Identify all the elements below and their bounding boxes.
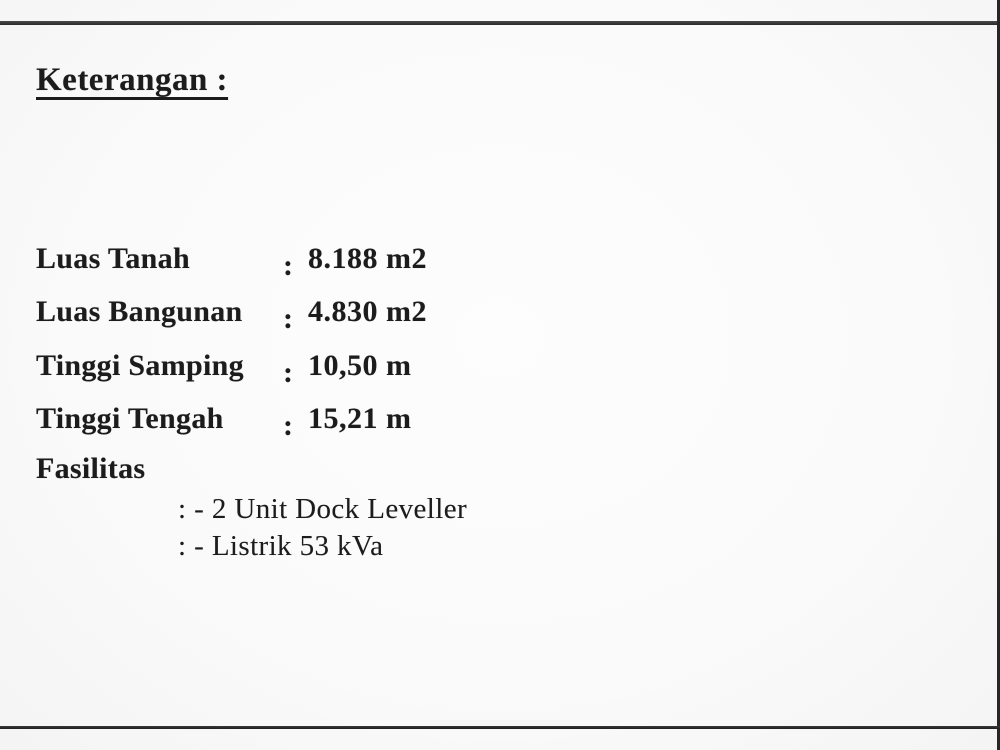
document-page: Keterangan : Luas Tanah : 8.188 m2 Luas … <box>0 0 1000 750</box>
specs-list: Luas Tanah : 8.188 m2 Luas Bangunan : 4.… <box>36 232 796 565</box>
spec-label: Fasilitas <box>36 452 283 486</box>
spec-row-luas-bangunan: Luas Bangunan : 4.830 m2 <box>36 286 796 340</box>
spec-label: Tinggi Tengah <box>36 402 283 436</box>
spec-value: 15,21 m <box>308 402 412 436</box>
spec-label: Luas Bangunan <box>36 295 283 329</box>
spec-colon: : <box>283 409 293 443</box>
facilities-items: : - 2 Unit Dock Leveller : - Listrik 53 … <box>36 491 796 565</box>
spec-row-tinggi-tengah: Tinggi Tengah : 15,21 m <box>36 393 796 447</box>
bottom-border-rule <box>0 726 1000 729</box>
spec-colon: : <box>283 249 293 283</box>
spec-label: Luas Tanah <box>36 242 283 276</box>
spec-row-fasilitas: Fasilitas <box>36 446 796 491</box>
spec-row-luas-tanah: Luas Tanah : 8.188 m2 <box>36 232 796 286</box>
page-title: Keterangan : <box>36 62 228 99</box>
spec-colon: : <box>283 302 293 336</box>
spec-value: 10,50 m <box>308 349 412 383</box>
facility-item-listrik: : - Listrik 53 kVa <box>178 528 796 565</box>
spec-label: Tinggi Samping <box>36 349 283 383</box>
facility-item-dock-leveller: : - 2 Unit Dock Leveller <box>178 491 796 528</box>
top-border-rule <box>0 21 1000 25</box>
spec-colon: : <box>283 356 293 390</box>
spec-value: 4.830 m2 <box>308 295 427 329</box>
spec-row-tinggi-samping: Tinggi Samping : 10,50 m <box>36 339 796 393</box>
spec-value: 8.188 m2 <box>308 242 427 276</box>
